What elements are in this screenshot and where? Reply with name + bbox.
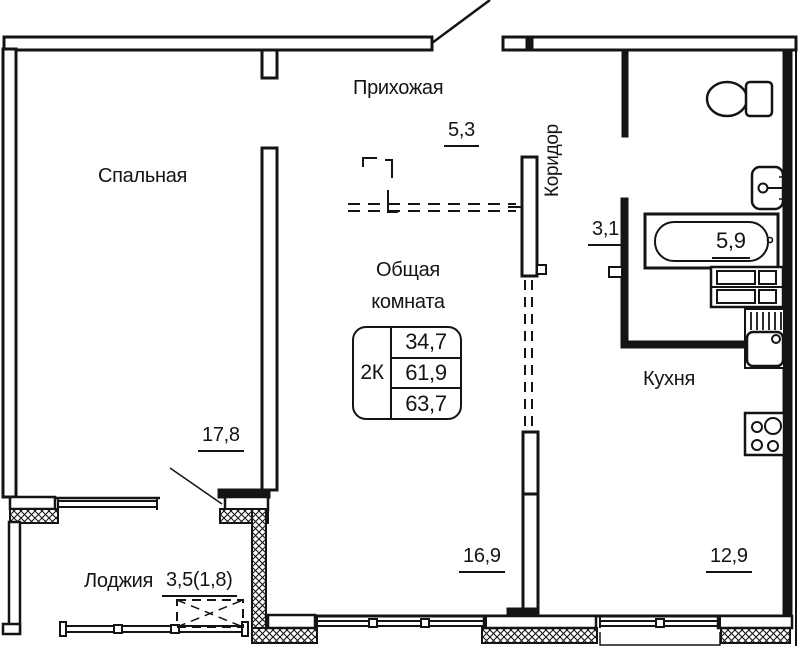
apartment-summary-table: 2К 34,7 61,9 63,7 [352,326,462,420]
summary-type-cell: 2К [354,328,392,418]
area-kitchen: 12,9 [706,545,752,573]
leader-line [170,468,222,504]
area-bathroom: 5,9 [712,228,750,259]
kitchen-sink-icon [745,309,784,368]
area-hallway: 5,3 [444,119,479,147]
entrance-door-swing [432,0,490,43]
room-label-loggia: Лоджия [84,570,153,593]
area-corridor: 3,1 [588,218,623,246]
room-label-bedroom: Спальная [98,165,187,188]
summary-rows: 34,7 61,9 63,7 [392,328,460,418]
area-bedroom: 17,8 [198,424,244,452]
stove-icon [745,413,784,455]
area-living-room: 16,9 [459,545,505,573]
summary-living-area: 34,7 [392,328,460,359]
toilet-icon [707,82,772,116]
room-label-living-room: Общая комната [356,254,460,318]
floor-plan: Спальная Прихожая 5,3 Коридор 3,1 5,9 Об… [0,0,800,648]
room-label-kitchen: Кухня [643,368,695,391]
loggia-hatch-box [177,600,243,627]
cabinet-icon [711,267,783,307]
room-label-corridor: Коридор [542,124,564,197]
washbasin-icon [752,167,789,209]
summary-area: 61,9 [392,359,460,390]
summary-total-area: 63,7 [392,389,460,418]
room-label-hallway: Прихожая [353,77,443,100]
area-loggia: 3,5(1,8) [162,569,237,597]
